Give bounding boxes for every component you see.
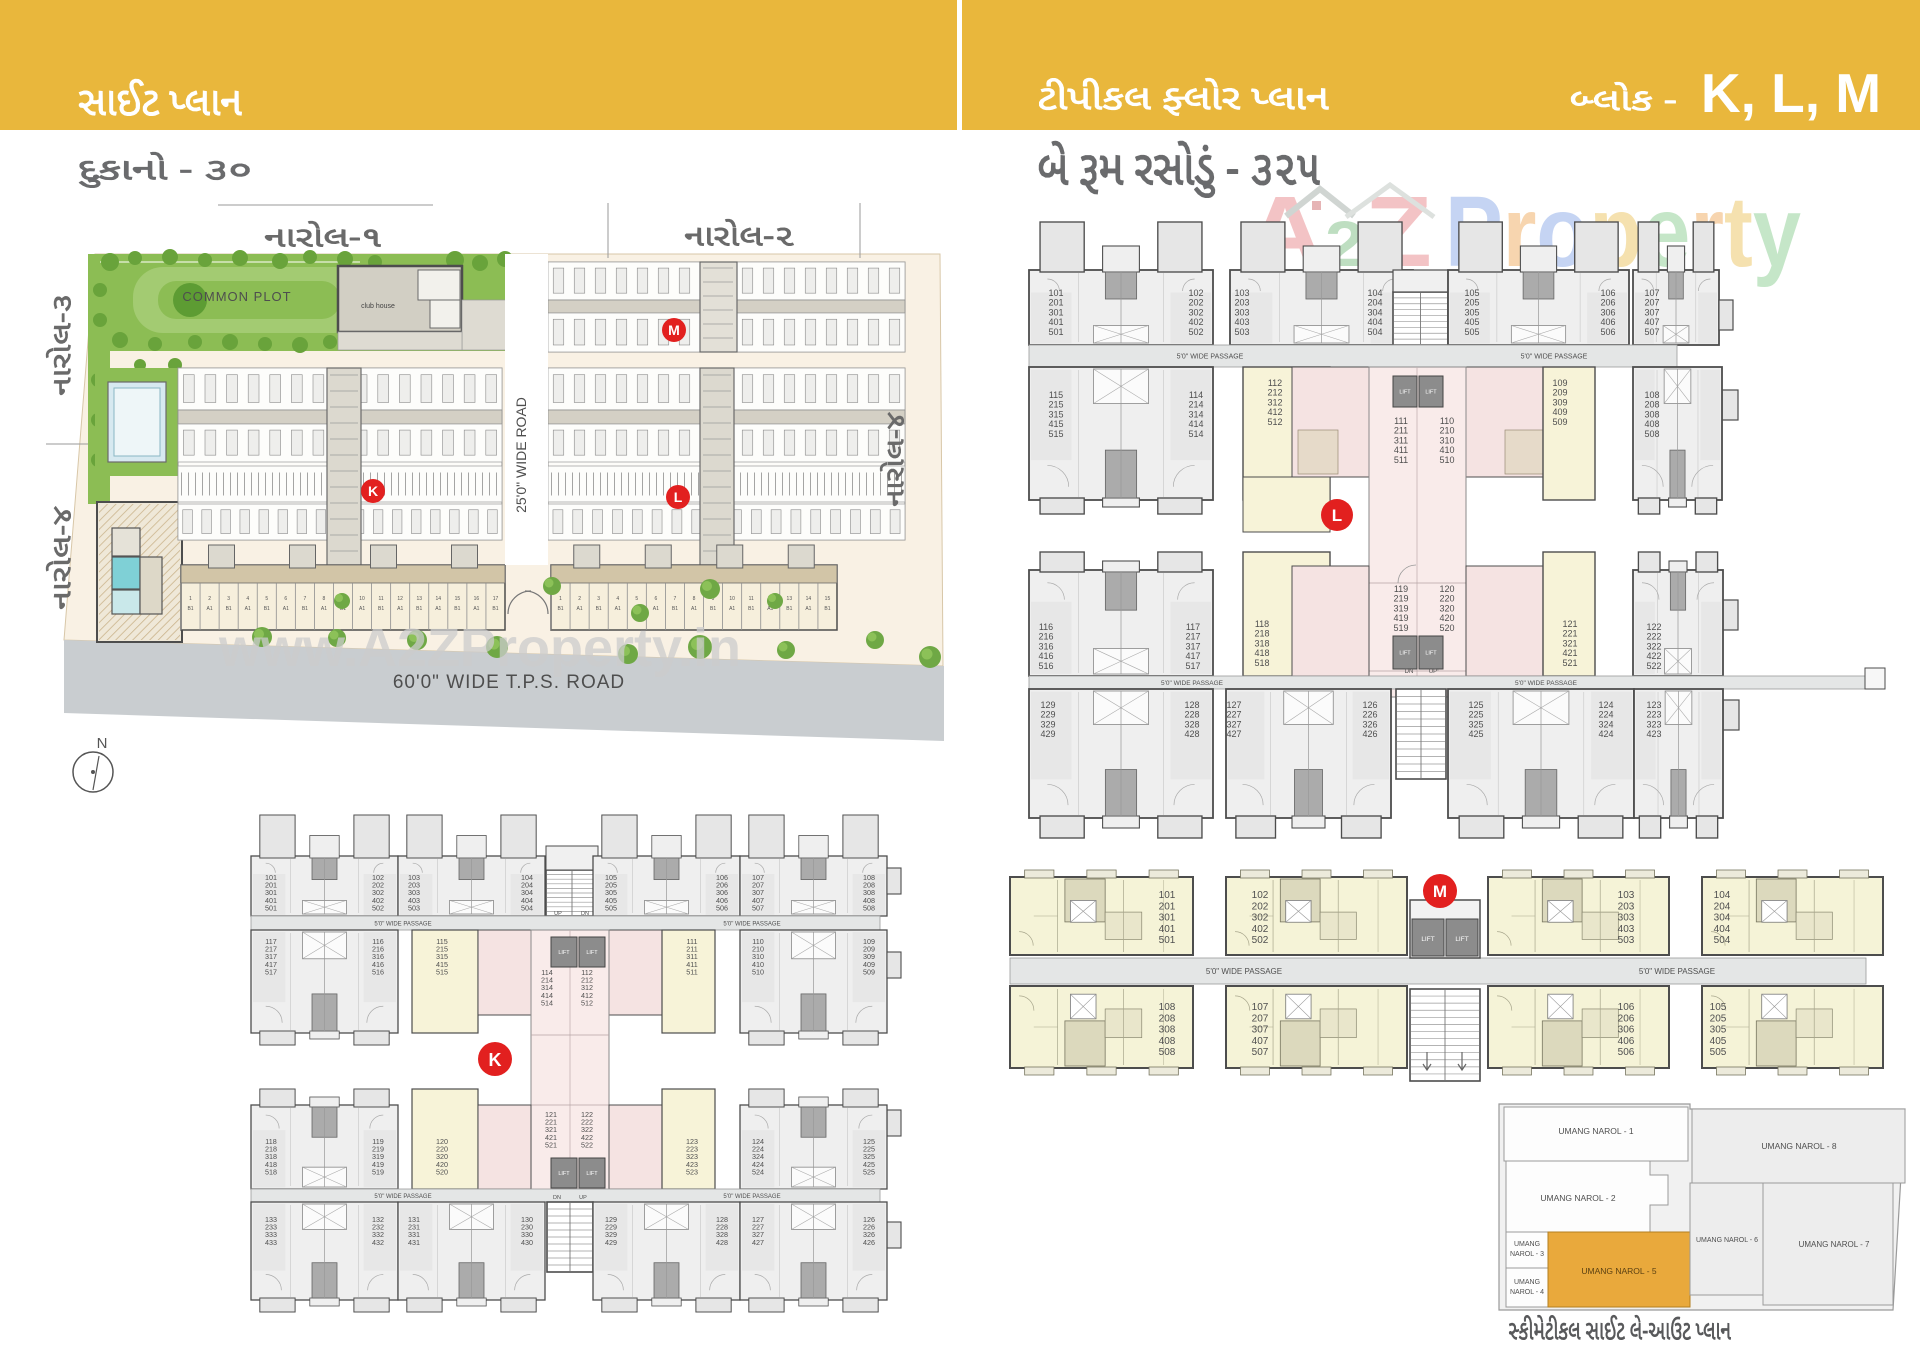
svg-text:111211311411511: 111211311411511: [686, 937, 697, 976]
svg-text:124224324424: 124224324424: [1598, 700, 1613, 739]
svg-text:A1: A1: [577, 606, 583, 612]
svg-text:A1: A1: [397, 606, 403, 612]
svg-text:2: 2: [578, 596, 581, 602]
svg-text:K, L, M: K, L, M: [1701, 62, 1881, 124]
svg-text:5'0" WIDE PASSAGE: 5'0" WIDE PASSAGE: [374, 921, 431, 927]
svg-text:A1: A1: [435, 606, 441, 612]
svg-text:3: 3: [227, 596, 230, 602]
svg-text:6: 6: [654, 596, 657, 602]
svg-text:125225325425: 125225325425: [1468, 700, 1483, 739]
svg-text:A1: A1: [283, 606, 289, 612]
svg-text:B1: B1: [824, 606, 830, 612]
svg-text:8: 8: [693, 596, 696, 602]
svg-text:104204304404504: 104204304404504: [1714, 890, 1731, 946]
svg-text:7: 7: [674, 596, 677, 602]
svg-text:103203303403503: 103203303403503: [1618, 890, 1635, 946]
svg-text:127227327427: 127227327427: [1226, 700, 1241, 739]
svg-text:117217317417517: 117217317417517: [265, 937, 277, 976]
svg-text:103203303403503: 103203303403503: [1234, 288, 1249, 337]
svg-text:125225325425525: 125225325425525: [863, 1137, 875, 1176]
svg-text:14: 14: [436, 596, 442, 602]
svg-text:128228328428: 128228328428: [716, 1215, 728, 1247]
svg-text:106206306406506: 106206306406506: [1618, 1002, 1635, 1058]
svg-text:118218318418518: 118218318418518: [265, 1137, 277, 1176]
svg-text:LIFT: LIFT: [1399, 390, 1411, 396]
svg-text:116216316416516: 116216316416516: [372, 937, 384, 976]
svg-text:124224324424524: 124224324424524: [752, 1137, 764, 1176]
svg-text:126226326426: 126226326426: [1362, 700, 1377, 739]
svg-text:B1: B1: [786, 606, 792, 612]
svg-text:104204304404504: 104204304404504: [521, 873, 533, 912]
svg-text:16: 16: [474, 596, 480, 602]
svg-text:111211311411511: 111211311411511: [1394, 416, 1408, 465]
svg-text:B1: B1: [557, 606, 563, 612]
svg-text:A1: A1: [805, 606, 811, 612]
svg-text:UMANG NAROL - 6: UMANG NAROL - 6: [1696, 1237, 1758, 1244]
svg-text:130230330430: 130230330430: [521, 1215, 533, 1247]
svg-text:1: 1: [189, 596, 192, 602]
svg-text:B1: B1: [710, 606, 716, 612]
svg-text:15: 15: [455, 596, 461, 602]
svg-text:5'0" WIDE PASSAGE: 5'0" WIDE PASSAGE: [1206, 967, 1282, 976]
svg-text:110210310410510: 110210310410510: [752, 937, 764, 976]
svg-text:L: L: [674, 489, 683, 505]
svg-text:126226326426: 126226326426: [863, 1215, 875, 1247]
svg-text:B1: B1: [302, 606, 308, 612]
svg-text:A1: A1: [321, 606, 327, 612]
svg-text:121221321421521: 121221321421521: [545, 1110, 557, 1149]
svg-text:www.A2ZProperty.in: www.A2ZProperty.in: [218, 618, 741, 678]
svg-text:5'0" WIDE PASSAGE: 5'0" WIDE PASSAGE: [723, 921, 780, 927]
svg-text:129229329429: 129229329429: [605, 1215, 617, 1247]
svg-text:NAROL - 4: NAROL - 4: [1510, 1289, 1544, 1296]
svg-text:106206306406506: 106206306406506: [1600, 288, 1615, 337]
svg-text:UMANG NAROL - 5: UMANG NAROL - 5: [1581, 1266, 1657, 1276]
svg-text:119219319419519: 119219319419519: [1393, 584, 1408, 633]
svg-text:13: 13: [787, 596, 793, 602]
svg-text:114214314414514: 114214314414514: [541, 968, 553, 1007]
svg-text:LIFT: LIFT: [1421, 936, 1434, 943]
svg-text:15: 15: [825, 596, 831, 602]
svg-text:K: K: [368, 483, 378, 499]
svg-text:112212312412512: 112212312412512: [1267, 378, 1282, 427]
svg-text:4: 4: [616, 596, 619, 602]
svg-text:108208308408508: 108208308408508: [863, 873, 875, 912]
svg-text:B1: B1: [748, 606, 754, 612]
svg-text:107207307407507: 107207307407507: [1252, 1002, 1269, 1058]
svg-text:117217317417517: 117217317417517: [1185, 622, 1200, 671]
svg-text:5'0" WIDE PASSAGE: 5'0" WIDE PASSAGE: [723, 1194, 780, 1200]
svg-text:B1: B1: [187, 606, 193, 612]
svg-text:131231331431: 131231331431: [408, 1215, 420, 1247]
svg-text:UMANG NAROL - 2: UMANG NAROL - 2: [1540, 1193, 1616, 1203]
svg-text:NAROL - 3: NAROL - 3: [1510, 1251, 1544, 1258]
svg-text:105205305405505: 105205305405505: [605, 873, 617, 912]
svg-text:102202302402502: 102202302402502: [1188, 288, 1203, 337]
svg-text:COMMON PLOT: COMMON PLOT: [182, 289, 291, 304]
svg-text:109209309409509: 109209309409509: [1552, 378, 1567, 427]
svg-text:B1: B1: [454, 606, 460, 612]
svg-text:5'0" WIDE PASSAGE: 5'0" WIDE PASSAGE: [374, 1194, 431, 1200]
svg-text:UMANG NAROL - 1: UMANG NAROL - 1: [1558, 1126, 1634, 1136]
svg-text:101201301401501: 101201301401501: [1048, 288, 1063, 337]
svg-text:B1: B1: [492, 606, 498, 612]
svg-text:5: 5: [265, 596, 268, 602]
svg-text:L: L: [1332, 506, 1342, 525]
svg-text:5: 5: [635, 596, 638, 602]
svg-text:6: 6: [284, 596, 287, 602]
svg-text:8: 8: [323, 596, 326, 602]
svg-text:A1: A1: [359, 606, 365, 612]
svg-text:108208308408508: 108208308408508: [1644, 390, 1659, 439]
svg-text:123223323423: 123223323423: [1646, 700, 1661, 739]
svg-text:2: 2: [208, 596, 211, 602]
svg-text:5'0" WIDE PASSAGE: 5'0" WIDE PASSAGE: [1161, 680, 1224, 687]
svg-text:1: 1: [559, 596, 562, 602]
svg-text:120220320420520: 120220320420520: [436, 1137, 448, 1176]
svg-text:N: N: [97, 735, 108, 752]
svg-text:110210310410510: 110210310410510: [1439, 416, 1454, 465]
svg-text:3: 3: [597, 596, 600, 602]
svg-text:102202302402502: 102202302402502: [1252, 890, 1269, 946]
svg-text:M: M: [1433, 882, 1447, 901]
svg-text:A1: A1: [691, 606, 697, 612]
svg-text:A1: A1: [653, 606, 659, 612]
svg-text:B1: B1: [226, 606, 232, 612]
svg-text:DN: DN: [1405, 669, 1414, 675]
svg-text:LIFT: LIFT: [1455, 936, 1468, 943]
svg-text:LIFT: LIFT: [1425, 651, 1437, 657]
svg-text:5'0" WIDE PASSAGE: 5'0" WIDE PASSAGE: [1177, 354, 1244, 361]
svg-text:129229329429: 129229329429: [1040, 700, 1055, 739]
svg-text:109209309409509: 109209309409509: [863, 937, 875, 976]
svg-text:LIFT: LIFT: [586, 950, 598, 956]
svg-text:25'0" WIDE ROAD: 25'0" WIDE ROAD: [513, 397, 529, 513]
svg-text:A1: A1: [615, 606, 621, 612]
svg-text:132232332432: 132232332432: [372, 1215, 384, 1247]
svg-text:121221321421521: 121221321421521: [1562, 619, 1577, 668]
svg-text:UMANG: UMANG: [1514, 1279, 1540, 1286]
svg-text:106206306406506: 106206306406506: [716, 873, 728, 912]
svg-text:K: K: [489, 1050, 502, 1070]
svg-text:103203303403503: 103203303403503: [408, 873, 420, 912]
svg-text:101201301401501: 101201301401501: [265, 873, 277, 912]
svg-text:A1: A1: [473, 606, 479, 612]
svg-text:107207307407507: 107207307407507: [752, 873, 764, 912]
svg-text:115215315415515: 115215315415515: [1048, 390, 1063, 439]
svg-text:UMANG NAROL - 8: UMANG NAROL - 8: [1761, 1141, 1837, 1151]
svg-text:M: M: [668, 322, 680, 338]
svg-text:13: 13: [416, 596, 422, 602]
svg-text:B1: B1: [416, 606, 422, 612]
svg-text:116216316416516: 116216316416516: [1038, 622, 1053, 671]
svg-text:UMANG NAROL - 7: UMANG NAROL - 7: [1799, 1240, 1870, 1249]
svg-text:122222322422522: 122222322422522: [1646, 622, 1661, 671]
svg-text:UMANG: UMANG: [1514, 1241, 1540, 1248]
svg-text:128228328428: 128228328428: [1184, 700, 1199, 739]
svg-text:102202302402502: 102202302402502: [372, 873, 384, 912]
svg-text:17: 17: [493, 596, 499, 602]
svg-text:12: 12: [397, 596, 403, 602]
svg-text:B1: B1: [264, 606, 270, 612]
svg-text:119219319419519: 119219319419519: [372, 1137, 384, 1176]
svg-text:10: 10: [729, 596, 735, 602]
svg-text:101201301401501: 101201301401501: [1159, 890, 1176, 946]
svg-text:133233333433: 133233333433: [265, 1215, 277, 1247]
svg-text:LIFT: LIFT: [586, 1171, 598, 1177]
svg-text:A1: A1: [207, 606, 213, 612]
svg-text:A1: A1: [245, 606, 251, 612]
svg-text:LIFT: LIFT: [558, 950, 570, 956]
svg-text:11: 11: [379, 596, 384, 602]
svg-text:123223323423523: 123223323423523: [686, 1137, 698, 1176]
svg-text:7: 7: [303, 596, 306, 602]
svg-text:DN: DN: [553, 1195, 561, 1201]
svg-text:B1: B1: [672, 606, 678, 612]
svg-text:5'0" WIDE PASSAGE: 5'0" WIDE PASSAGE: [1639, 967, 1715, 976]
svg-text:122222322422522: 122222322422522: [581, 1110, 593, 1149]
svg-text:112212312412512: 112212312412512: [581, 968, 593, 1007]
svg-text:14: 14: [806, 596, 812, 602]
svg-text:B1: B1: [596, 606, 602, 612]
svg-text:UP: UP: [579, 1195, 587, 1201]
svg-text:LIFT: LIFT: [558, 1171, 570, 1177]
svg-text:114214314414514: 114214314414514: [1188, 390, 1203, 439]
svg-text:108208308408508: 108208308408508: [1159, 1002, 1176, 1058]
svg-text:10: 10: [359, 596, 365, 602]
svg-text:120220320420520: 120220320420520: [1439, 584, 1454, 633]
svg-text:127227327427: 127227327427: [752, 1215, 764, 1247]
svg-text:club house: club house: [361, 303, 395, 310]
svg-text:UP: UP: [1429, 669, 1437, 675]
svg-text:4: 4: [246, 596, 249, 602]
svg-text:5'0" WIDE PASSAGE: 5'0" WIDE PASSAGE: [1515, 680, 1578, 687]
svg-text:118218318418518: 118218318418518: [1254, 619, 1269, 668]
svg-text:B1: B1: [378, 606, 384, 612]
svg-text:5'0" WIDE PASSAGE: 5'0" WIDE PASSAGE: [1521, 354, 1588, 361]
svg-text:105205305405505: 105205305405505: [1464, 288, 1479, 337]
svg-text:105205305405505: 105205305405505: [1710, 1002, 1727, 1058]
svg-text:LIFT: LIFT: [1399, 651, 1411, 657]
svg-text:LIFT: LIFT: [1425, 390, 1437, 396]
svg-text:A1: A1: [729, 606, 735, 612]
svg-text:115215315415515: 115215315415515: [436, 937, 448, 976]
svg-text:107207307407507: 107207307407507: [1644, 288, 1659, 337]
svg-text:11: 11: [749, 596, 754, 602]
svg-text:104204304404504: 104204304404504: [1367, 288, 1382, 337]
